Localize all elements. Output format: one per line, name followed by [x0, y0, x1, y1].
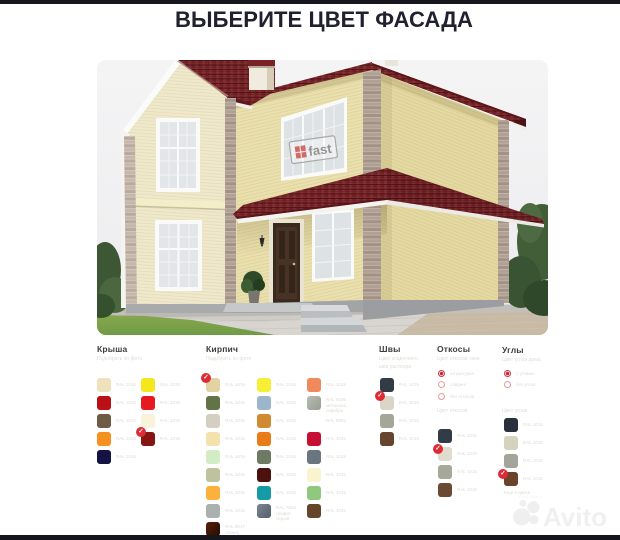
svg-text:Avito: Avito [543, 502, 607, 532]
svg-text:РЕКЛАМА: РЕКЛАМА [519, 495, 543, 499]
